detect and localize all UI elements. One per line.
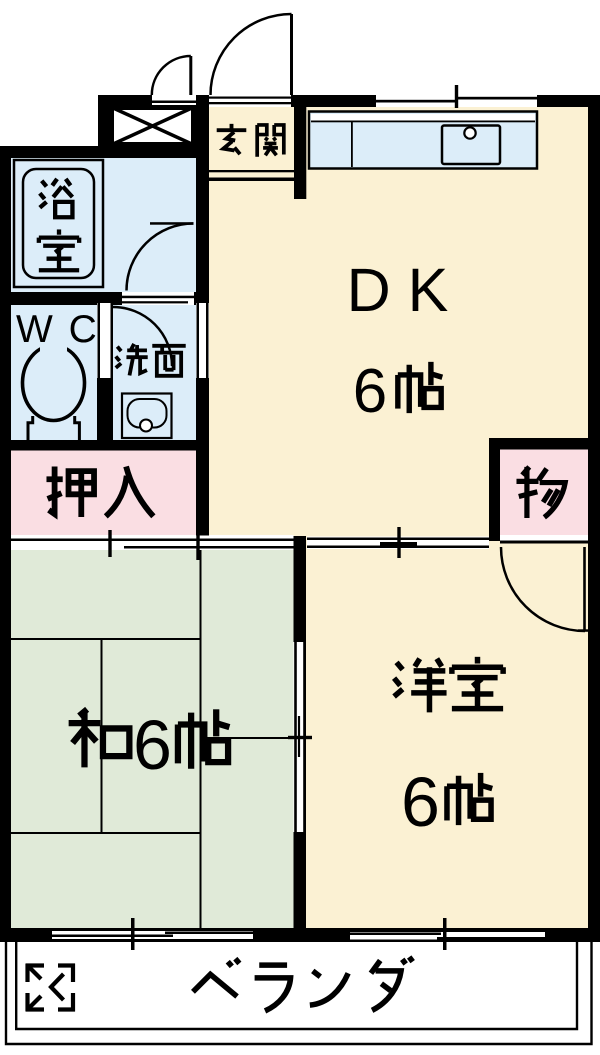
svg-text:6: 6 <box>133 706 172 784</box>
svg-text:6: 6 <box>353 357 387 426</box>
svg-text:6: 6 <box>401 763 440 841</box>
svg-text:D K: D K <box>347 256 449 324</box>
svg-text:W C: W C <box>16 308 99 351</box>
